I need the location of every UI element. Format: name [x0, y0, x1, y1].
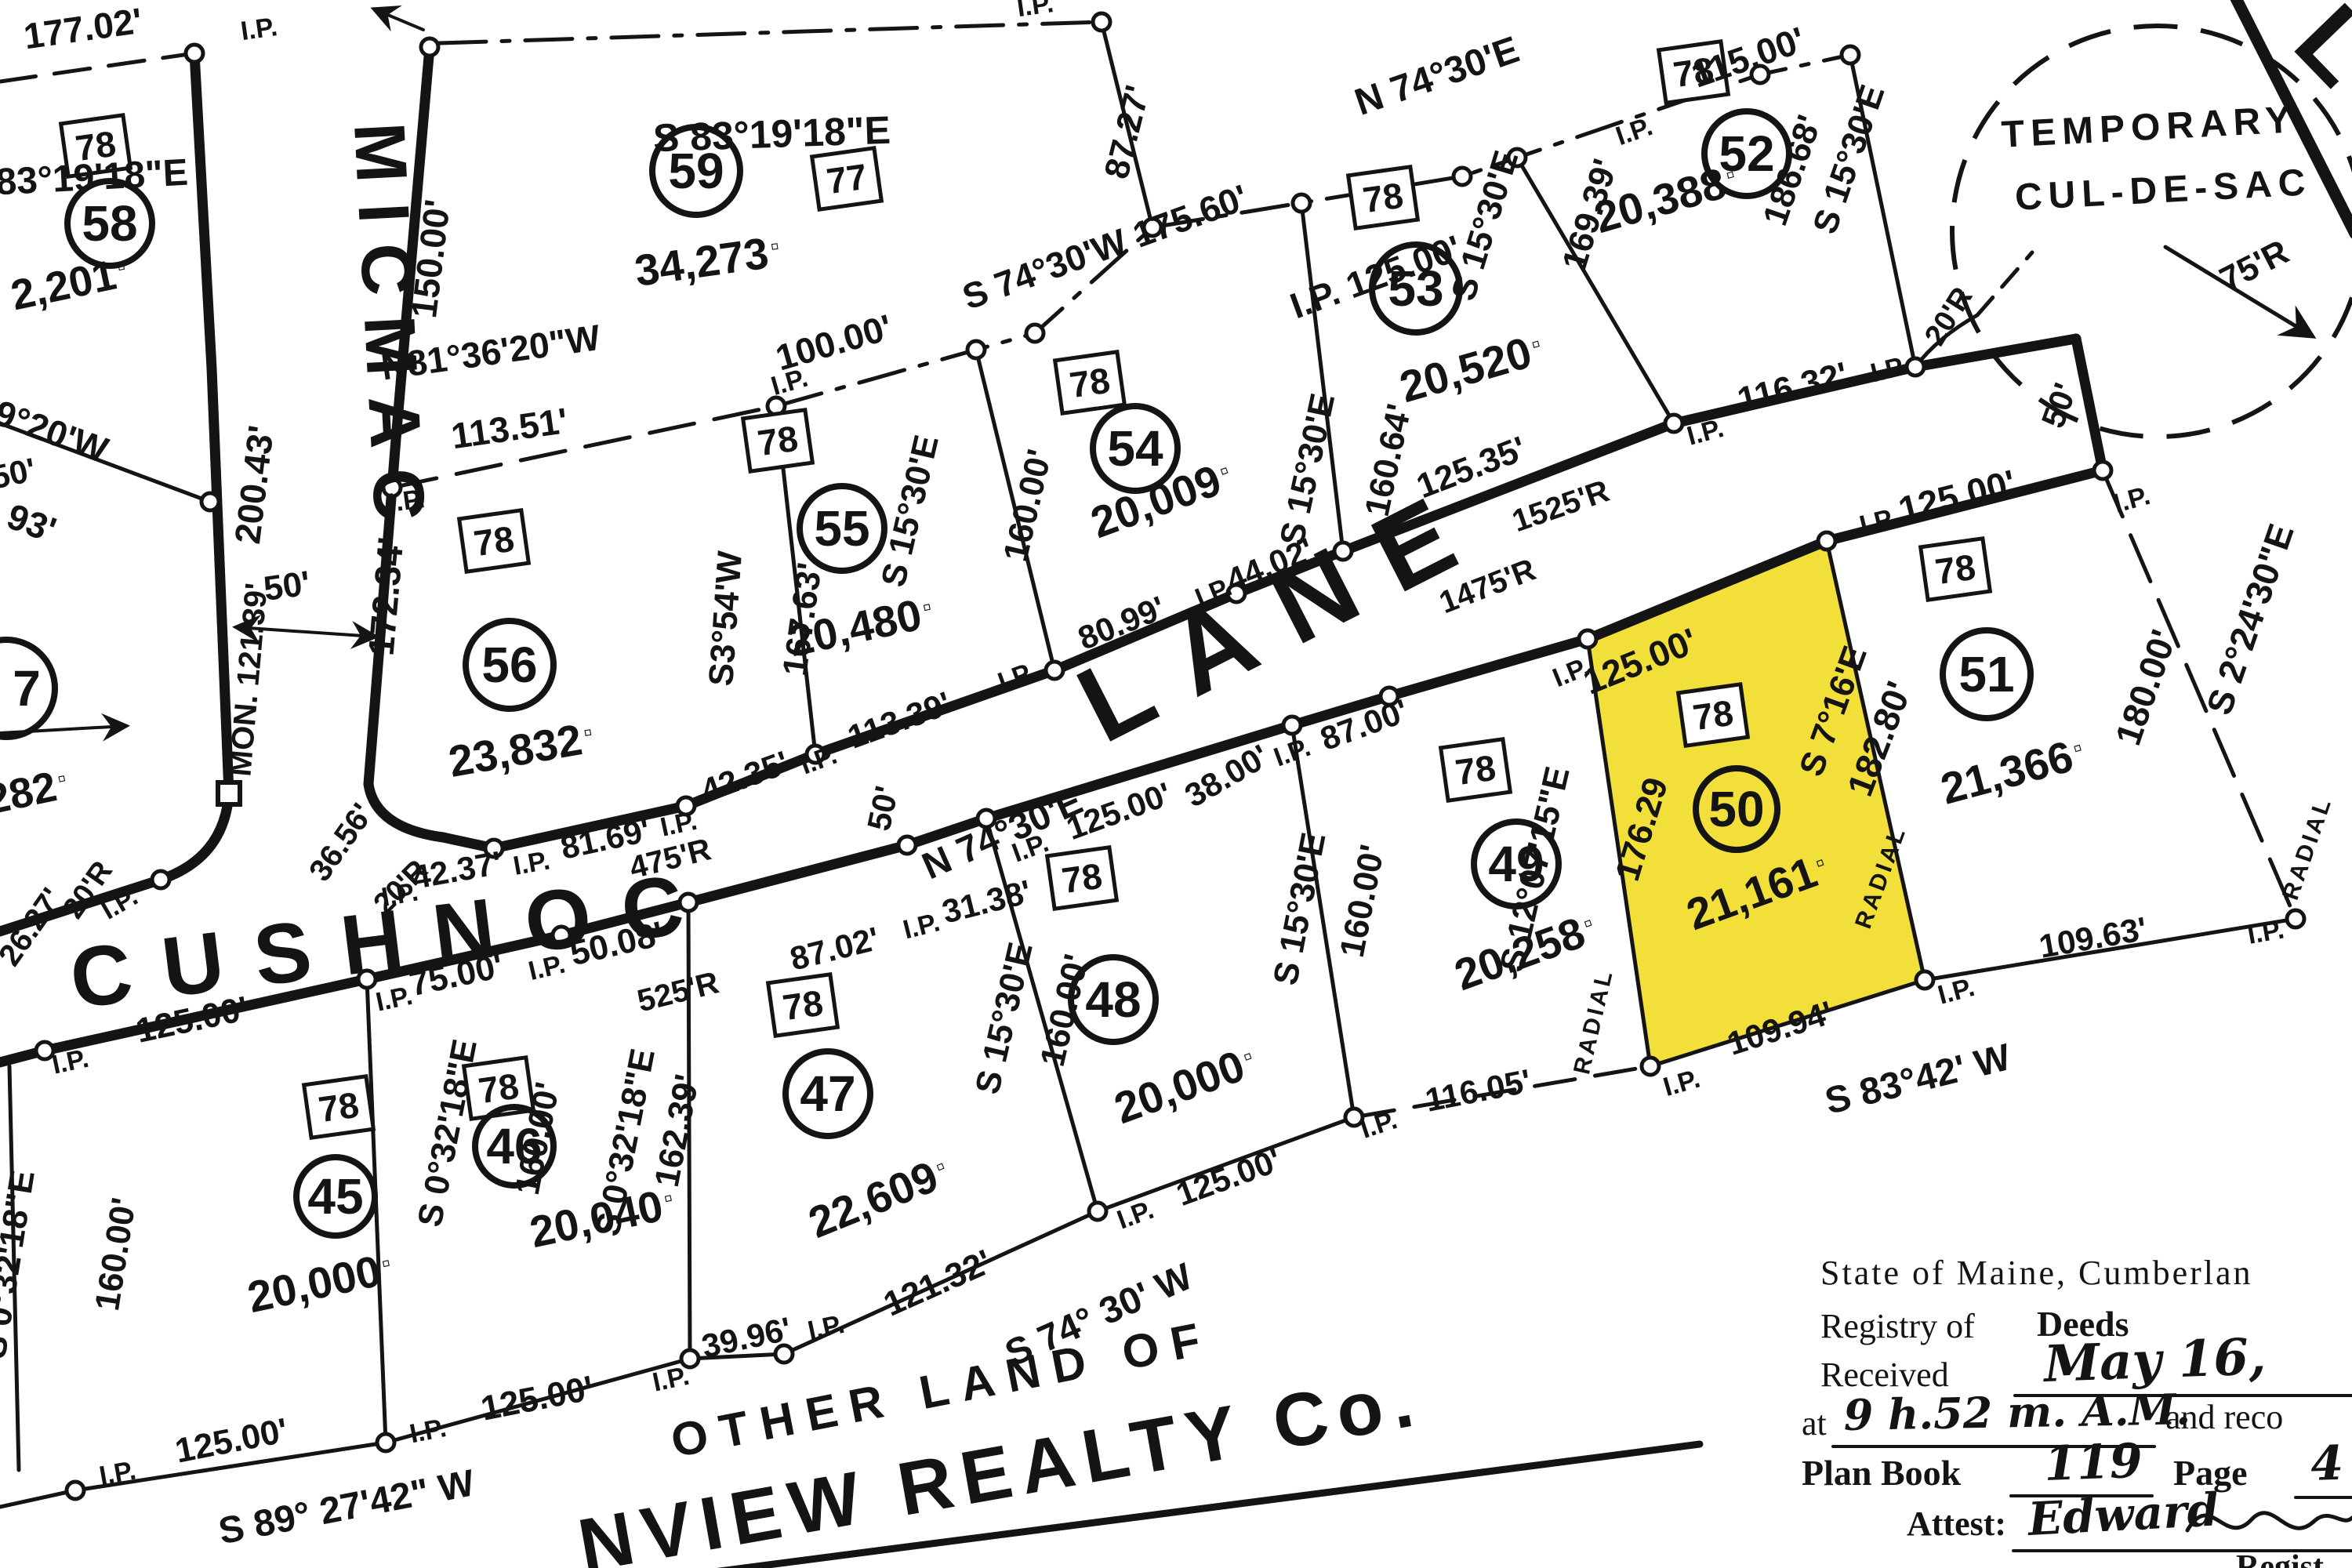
iron-pin-icon [377, 1434, 394, 1451]
dim-100-00: 100.00' [771, 307, 897, 379]
bearing-s74-175-60: S 74°30'W 175.60' [957, 176, 1254, 318]
dim-125-00-b3: 125.00' [1171, 1142, 1286, 1214]
lot-number: 54 [1107, 420, 1163, 477]
top-line-59 [439, 22, 1102, 43]
ip-label: I.P. [1867, 350, 1910, 388]
tax-map-number: 77 [824, 156, 869, 202]
lot-number: 58 [82, 195, 137, 252]
dim-160-00-45-left: 160.00' [88, 1195, 143, 1313]
radial-label-49: RADIAL [1569, 966, 1618, 1076]
bearing-s3-54: S3°54'W [702, 550, 750, 688]
lot-number: 56 [481, 637, 537, 693]
iron-pin-icon [1665, 415, 1682, 432]
tax-map-number: 78 [1933, 546, 1978, 593]
tax-map-number: 78 [1059, 855, 1105, 902]
dim-75r: 75'R [2214, 233, 2295, 299]
dim-115-00: 115.00' [1686, 19, 1810, 96]
bearing-s0-4546: S 0°32'18"E [411, 1036, 485, 1230]
bearing-s15-52e: S 15°30'E [1806, 80, 1892, 238]
dim-87-02: 87.02' [786, 920, 883, 977]
tax-map-box: 78 [1055, 352, 1125, 413]
dim-200-43: 200.43' [227, 423, 281, 546]
tax-map-number: 78 [471, 518, 517, 564]
dim-26-27: 26.27' [0, 882, 70, 972]
iron-pin-icon [1818, 532, 1835, 550]
lot59-area: 34,273▫ [632, 227, 783, 296]
iron-pin-icon [1907, 358, 1924, 376]
radial-stub [1977, 252, 2032, 315]
micmac-west [194, 53, 229, 793]
reg-signature: Edward [2025, 1483, 2220, 1546]
tax-map-number: 78 [1690, 692, 1736, 739]
iron-pin-icon [967, 341, 985, 358]
tax-map-box: 77 [812, 148, 882, 209]
reg-regist-cut: Regist [2236, 1549, 2324, 1568]
temporary-culdesac-arc [1952, 26, 2352, 437]
iron-pin-icon [421, 38, 438, 56]
arrow-north [375, 9, 423, 30]
tax-map-number: 78 [780, 982, 826, 1029]
lot-number: 45 [307, 1168, 363, 1225]
micmac-east-fillet [368, 784, 443, 837]
reg-attest: Attest: [1907, 1504, 2006, 1543]
tax-map-box: 78 [304, 1076, 374, 1138]
reg-registry: Registry of [1820, 1307, 1975, 1345]
lot56-area: 23,832▫ [445, 713, 597, 786]
reg-book-num: 119 [2043, 1434, 2143, 1492]
lot-number: 47 [800, 1065, 855, 1122]
lot-number-circle: 55 [800, 486, 884, 571]
iron-pin-icon [1293, 194, 1310, 212]
tax-map-box: 78 [1441, 739, 1511, 800]
reg-planbook: Plan Book [1802, 1453, 1962, 1493]
lot-number: 55 [814, 500, 869, 557]
street-endcap [2076, 339, 2103, 470]
dim-31-38: 31.38' [938, 873, 1035, 930]
lot-number-circle: 51 [1943, 630, 2031, 718]
ip-label: I.P. [900, 907, 942, 945]
iron-pin-icon [1842, 46, 1859, 64]
tax-map-number: 78 [1067, 360, 1112, 406]
bearing-83-19-18-cut: 83°19'18"E [0, 152, 189, 204]
dim-116-05: 116.05' [1422, 1062, 1534, 1119]
dim-50-endcap: 50' [2034, 378, 2085, 432]
tax-map-box: 78 [1047, 848, 1117, 909]
ip-label: I.P. [2245, 914, 2287, 950]
dim-160-00-4849: 160.00' [1333, 841, 1392, 960]
dim-172-34: 172.34' [361, 535, 412, 658]
monument-icon [218, 782, 240, 804]
dim-113-51: 113.51' [448, 400, 570, 456]
dim-125-00-51: 125.00' [1894, 462, 2020, 530]
iron-pin-icon [1579, 630, 1596, 648]
dim-109-63: 109.63' [2036, 910, 2150, 965]
tax-map-number: 78 [1453, 747, 1498, 793]
ip-label: I.P. [97, 1455, 139, 1491]
iron-pin-icon [1454, 168, 1471, 185]
dim-180-00: 180.00' [2107, 625, 2185, 750]
reg-page-num: 4 [2310, 1436, 2344, 1492]
lot-number-circle: 56 [466, 621, 554, 709]
tax-map-number: 78 [755, 418, 800, 464]
temporary-culdesac-circle [1952, 26, 2352, 437]
ip-label: I.P. [1857, 503, 1899, 540]
tax-map-box: 78 [768, 975, 838, 1036]
iron-pin-icon [1046, 662, 1063, 679]
dim-162-39: 162.39' [648, 1071, 707, 1190]
iron-pin-icon [1093, 13, 1110, 31]
ip-label: I.P. [373, 981, 416, 1018]
ip-label: I.P. [407, 1413, 448, 1449]
dim-116-32: 116.32' [1733, 355, 1851, 419]
dim-125-00-b2: 125.00' [477, 1369, 597, 1428]
dim-121-32: 121.32' [878, 1243, 997, 1324]
lot51-area: 21,366▫ [1936, 728, 2089, 814]
map-labels: 177.02'I.P.83°19'18"E2,201▫9°20'W50'93'2… [0, 0, 2352, 1568]
lot-number: 48 [1085, 971, 1141, 1028]
dim-mon-121-39: MON. 121.39' [223, 582, 274, 778]
dim-50-lane: 50' [860, 782, 906, 833]
iron-pin-icon [67, 1482, 84, 1499]
lot48-area: 20,000▫ [1108, 1036, 1262, 1133]
iron-pin-icon [2287, 910, 2304, 927]
iron-pin-icon [898, 837, 916, 854]
ip-label: I.P. [1660, 1064, 1703, 1102]
dim-177-02: 177.02' [21, 0, 144, 56]
dim-50-left-cut: 50' [0, 451, 39, 496]
ip-label: I.P. [805, 1309, 848, 1346]
iron-pin-icon [1089, 1203, 1106, 1220]
lot58-area: 2,201▫ [7, 249, 132, 319]
ip-label: I.P. [650, 1361, 692, 1398]
lot-number-circle: 7 [0, 640, 55, 737]
lot-number: 50 [1708, 781, 1764, 837]
dim-87-27: 87.27' [1098, 82, 1158, 183]
ip-label: I.P. [2111, 481, 2154, 519]
iron-pin-icon [1916, 971, 1933, 989]
ip-label: I.P. [1270, 732, 1315, 773]
bearing-s15-4748: S 15°30'E [968, 938, 1040, 1098]
dim-525r: 525'R [634, 965, 723, 1018]
reg-andreco: and reco [2165, 1398, 2283, 1436]
tax-map-number: 78 [316, 1084, 361, 1131]
tax-map-box: 78 [459, 510, 529, 572]
ip-label: I.P. [387, 484, 426, 518]
bearing-s15-5554: S 15°30'E [874, 431, 946, 590]
dim-36-56: 36.56' [303, 797, 380, 887]
back-line [776, 55, 1850, 406]
ip-label: I.P. [239, 12, 279, 46]
culdesac-line1: TEMPORARY [2001, 99, 2298, 156]
lot-number: 51 [1958, 646, 2014, 702]
lot45-area: 20,000▫ [243, 1243, 396, 1322]
ip-label: I.P. [1612, 111, 1656, 151]
dim-113-39: 113.39' [843, 684, 956, 756]
tax-map-box: 78 [1679, 684, 1748, 746]
top-bearing-s83: S 83°19'18"E [652, 108, 891, 161]
bearing-s83-42: S 83°42' W [1821, 1036, 2016, 1123]
bearing-s89-27-42: S 89° 27'42" W [216, 1462, 479, 1552]
iron-pin-icon [2094, 462, 2111, 479]
bearing-n74-back: N 74°30'E [1350, 29, 1525, 124]
dim-42-35: 42.35' [696, 744, 793, 810]
reg-at: at [1802, 1404, 1827, 1443]
iron-pin-icon [186, 45, 203, 62]
bearing-s2-24-30: S 2°24'30"E [2198, 519, 2302, 720]
ip-label: I.P. [1015, 0, 1055, 23]
lot47-area: 22,609▫ [802, 1147, 956, 1247]
lot-number-circle: 45 [296, 1157, 375, 1236]
iron-pin-icon [1026, 325, 1044, 342]
reg-time: 9 h.52 m. A.M. [1843, 1384, 2190, 1440]
reg-state: State of Maine, Cumberlan [1820, 1254, 2253, 1292]
lot57-area: 282▫ [0, 760, 72, 823]
iron-pin-icon [1642, 1058, 1659, 1075]
culdesac-line2: CUL-DE-SAC [2014, 162, 2313, 219]
monument-markers [218, 782, 240, 804]
arrow-50-left [0, 726, 125, 733]
lot-number: 7 [13, 660, 41, 717]
radial-label-51: RADIAL [2278, 793, 2337, 904]
ip-label: I.P. [1113, 1195, 1158, 1236]
ip-label: I.P. [49, 1044, 92, 1080]
lot-number-circle: 47 [786, 1051, 870, 1136]
subdivision-plat-map: 7877787878787878787878787878 58759565554… [0, 0, 2352, 1568]
line-top-177 [0, 53, 194, 82]
lot53-area: 20,520▫ [1394, 324, 1548, 412]
tax-map-box: 78 [743, 410, 813, 471]
iron-pin-icon [152, 871, 169, 888]
street-micmac: MICMAC [339, 121, 441, 543]
dim-93-cut: 93' [2, 495, 61, 550]
iron-pin-icon [1283, 717, 1301, 734]
iron-pin-icon [201, 493, 219, 510]
plat-map-page: 7877787878787878787878787878 58759565554… [0, 0, 2352, 1568]
bearing-s15-4849: S 15°30'E [1266, 829, 1334, 989]
bearing-s0-45-left: S 0°32'18"E [0, 1167, 42, 1361]
tax-map-box: 78 [1921, 539, 1991, 600]
tax-map-box: 78 [1348, 167, 1418, 228]
tax-map-number: 78 [1360, 175, 1406, 221]
